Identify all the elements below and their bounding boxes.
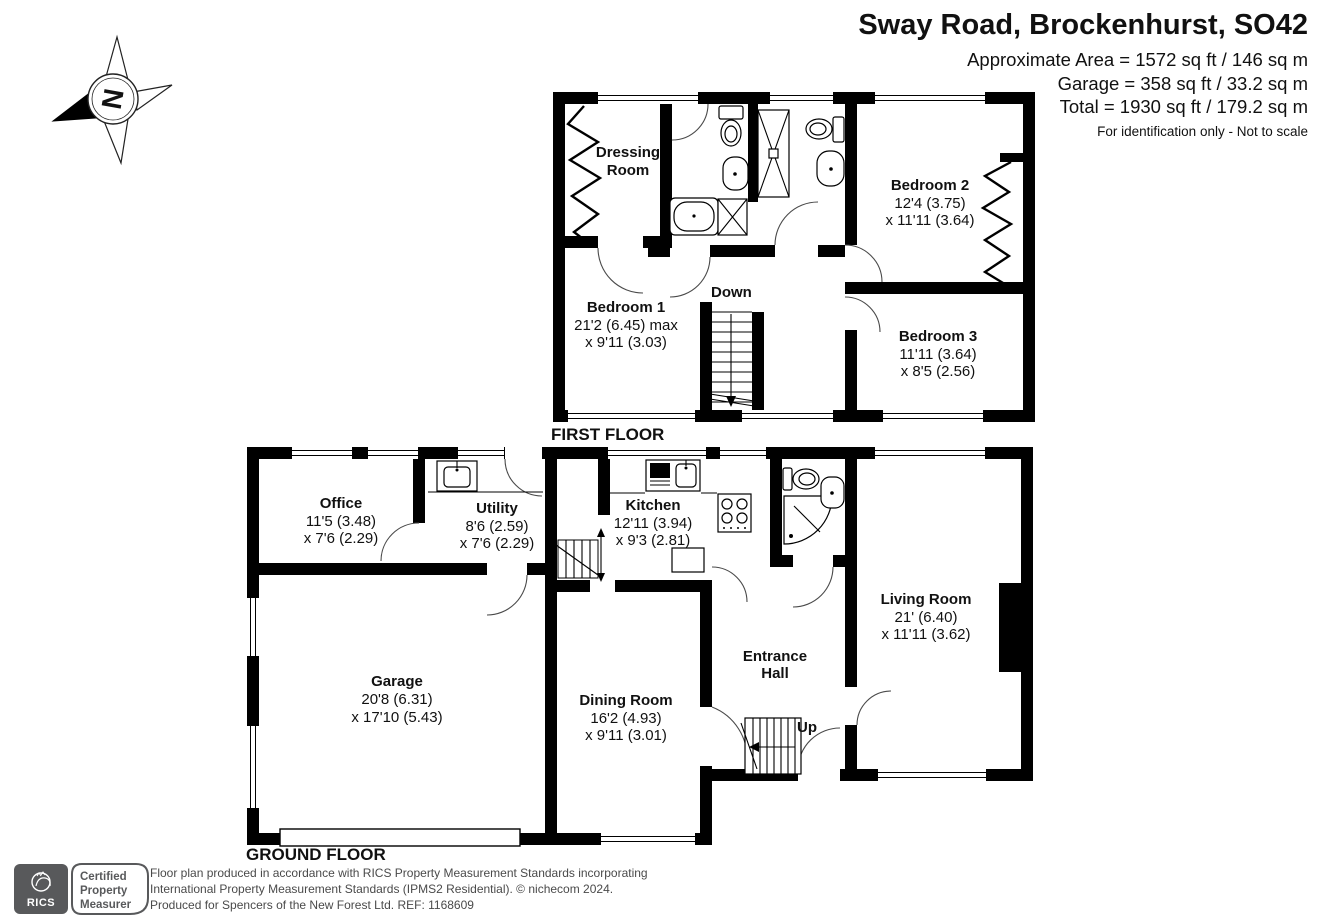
front-door-opening (798, 769, 840, 781)
footer-line3: Produced for Spencers of the New Forest … (150, 898, 474, 912)
window (720, 447, 766, 459)
rics-brand-text: RICS (27, 897, 55, 909)
toilet-icon (806, 117, 844, 142)
room-label-dressing-2: Room (607, 162, 650, 179)
window (292, 447, 352, 459)
area-total-line: Approximate Area = 1572 sq ft / 146 sq m (967, 49, 1308, 70)
window (883, 410, 983, 422)
room-label-living: Living Room (881, 591, 972, 608)
window (598, 92, 698, 104)
room-dim-living-2: x 11'11 (3.62) (881, 626, 970, 643)
compass-icon: N (53, 37, 172, 163)
floorplan-canvas: Sway Road, Brockenhurst, SO42 Approximat… (0, 0, 1320, 920)
window (608, 447, 706, 459)
sink-icon (821, 477, 844, 508)
room-label-entrance-2: Hall (761, 665, 789, 682)
first-floor-title: FIRST FLOOR (551, 425, 664, 444)
window (601, 833, 695, 845)
ground-floor-plan: Up Office 11'5 (3.48) x 7'6 (2.29) Uti (246, 447, 1033, 864)
room-dim-office: 11'5 (3.48) (306, 513, 376, 530)
shower-icon (758, 110, 789, 197)
room-label-kitchen: Kitchen (625, 497, 680, 514)
rics-badge: RICS Certified Property Measurer (14, 864, 148, 914)
area-grand-total-line: Total = 1930 sq ft / 179.2 sq m (1060, 96, 1308, 117)
window (247, 598, 259, 656)
room-dim-kitchen-2: x 9'3 (2.81) (616, 532, 691, 549)
room-label-dressing: Dressing (596, 144, 660, 161)
first-floor-plan: Down Dressing Room Bedroom 1 21'2 (6.45)… (551, 92, 1035, 444)
room-label-bedroom2: Bedroom 2 (891, 177, 969, 194)
room-dim-garage-2: x 17'10 (5.43) (351, 709, 442, 726)
floorplan-page: Sway Road, Brockenhurst, SO42 Approximat… (0, 0, 1320, 920)
room-dim-bedroom2: 12'4 (3.75) (894, 195, 965, 212)
room-label-garage: Garage (371, 673, 423, 690)
window (878, 769, 986, 781)
garage-door (280, 829, 520, 846)
room-dim-utility: 8'6 (2.59) (466, 518, 529, 535)
footer: RICS Certified Property Measurer Floor p… (14, 864, 648, 914)
wardrobe-zigzag-dressing (568, 106, 600, 246)
room-dim-office-2: x 7'6 (2.29) (304, 530, 379, 547)
window (568, 410, 695, 422)
room-label-utility: Utility (476, 500, 518, 517)
disclaimer-text: For identification only - Not to scale (1097, 124, 1308, 139)
room-dim-utility-2: x 7'6 (2.29) (460, 535, 535, 552)
stairs-up-label: Up (797, 719, 817, 736)
room-dim-garage: 20'8 (6.31) (361, 691, 432, 708)
toilet-icon (719, 106, 743, 146)
room-label-dining: Dining Room (579, 692, 672, 709)
ground-floor-labels: Office 11'5 (3.48) x 7'6 (2.29) Utility … (246, 495, 971, 864)
room-dim-kitchen: 12'11 (3.94) (614, 515, 692, 532)
certified-line1: Certified (80, 871, 127, 883)
kitchen-sink-unit-icon (646, 460, 700, 491)
stairs-down: Down (710, 284, 754, 407)
room-dim-living: 21' (6.40) (895, 609, 958, 626)
room-label-bedroom3: Bedroom 3 (899, 328, 977, 345)
room-dim-bedroom2-2: x 11'11 (3.64) (885, 212, 974, 229)
room-dim-bedroom3-2: x 8'5 (2.56) (901, 363, 976, 380)
room-label-office: Office (320, 495, 363, 512)
bath-icon (670, 198, 718, 235)
window (247, 726, 259, 808)
utility-door-opening (505, 447, 542, 459)
certified-line2: Property (80, 885, 128, 897)
room-dim-bedroom1: 21'2 (6.45) max (574, 317, 678, 334)
window (875, 92, 985, 104)
utility-sink-icon (437, 461, 477, 491)
airing-cupboard-icon (718, 199, 747, 235)
room-dim-bedroom3: 11'11 (3.64) (899, 346, 976, 363)
room-label-bedroom1: Bedroom 1 (587, 299, 665, 316)
sink-icon (817, 151, 844, 186)
header: Sway Road, Brockenhurst, SO42 Approximat… (858, 9, 1308, 139)
kitchen-counter (672, 548, 704, 572)
room-dim-dining: 16'2 (4.93) (590, 710, 661, 727)
window (770, 92, 833, 104)
sink-icon (723, 157, 748, 190)
room-dim-dining-2: x 9'11 (3.01) (585, 727, 667, 744)
footer-line1: Floor plan produced in accordance with R… (150, 866, 648, 880)
window (368, 447, 418, 459)
window (458, 447, 504, 459)
hob-icon (718, 494, 751, 532)
window (742, 410, 833, 422)
stairs-upper-flight (556, 528, 605, 582)
toilet-icon (783, 468, 819, 490)
page-title: Sway Road, Brockenhurst, SO42 (858, 9, 1308, 41)
ground-floor-title: GROUND FLOOR (246, 845, 386, 864)
window (875, 447, 985, 459)
room-dim-bedroom1-2: x 9'11 (3.03) (585, 334, 667, 351)
wardrobe-zigzag-bedroom2 (983, 162, 1011, 286)
footer-line2: International Property Measurement Stand… (150, 882, 613, 896)
stairs-down-label: Down (711, 284, 752, 301)
room-label-entrance: Entrance (743, 648, 807, 665)
stair-arrow-up-small (597, 528, 605, 537)
area-garage-line: Garage = 358 sq ft / 33.2 sq m (1058, 73, 1308, 94)
certified-line3: Measurer (80, 899, 132, 911)
